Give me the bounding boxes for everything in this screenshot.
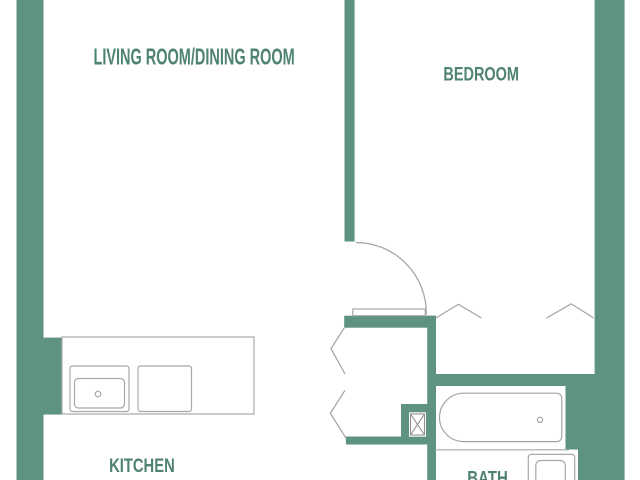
- svg-text:LIVING ROOM/DINING ROOM: LIVING ROOM/DINING ROOM: [93, 45, 294, 70]
- svg-text:BEDROOM: BEDROOM: [443, 64, 519, 85]
- svg-text:KITCHEN: KITCHEN: [109, 455, 175, 476]
- svg-text:BATH: BATH: [467, 468, 508, 480]
